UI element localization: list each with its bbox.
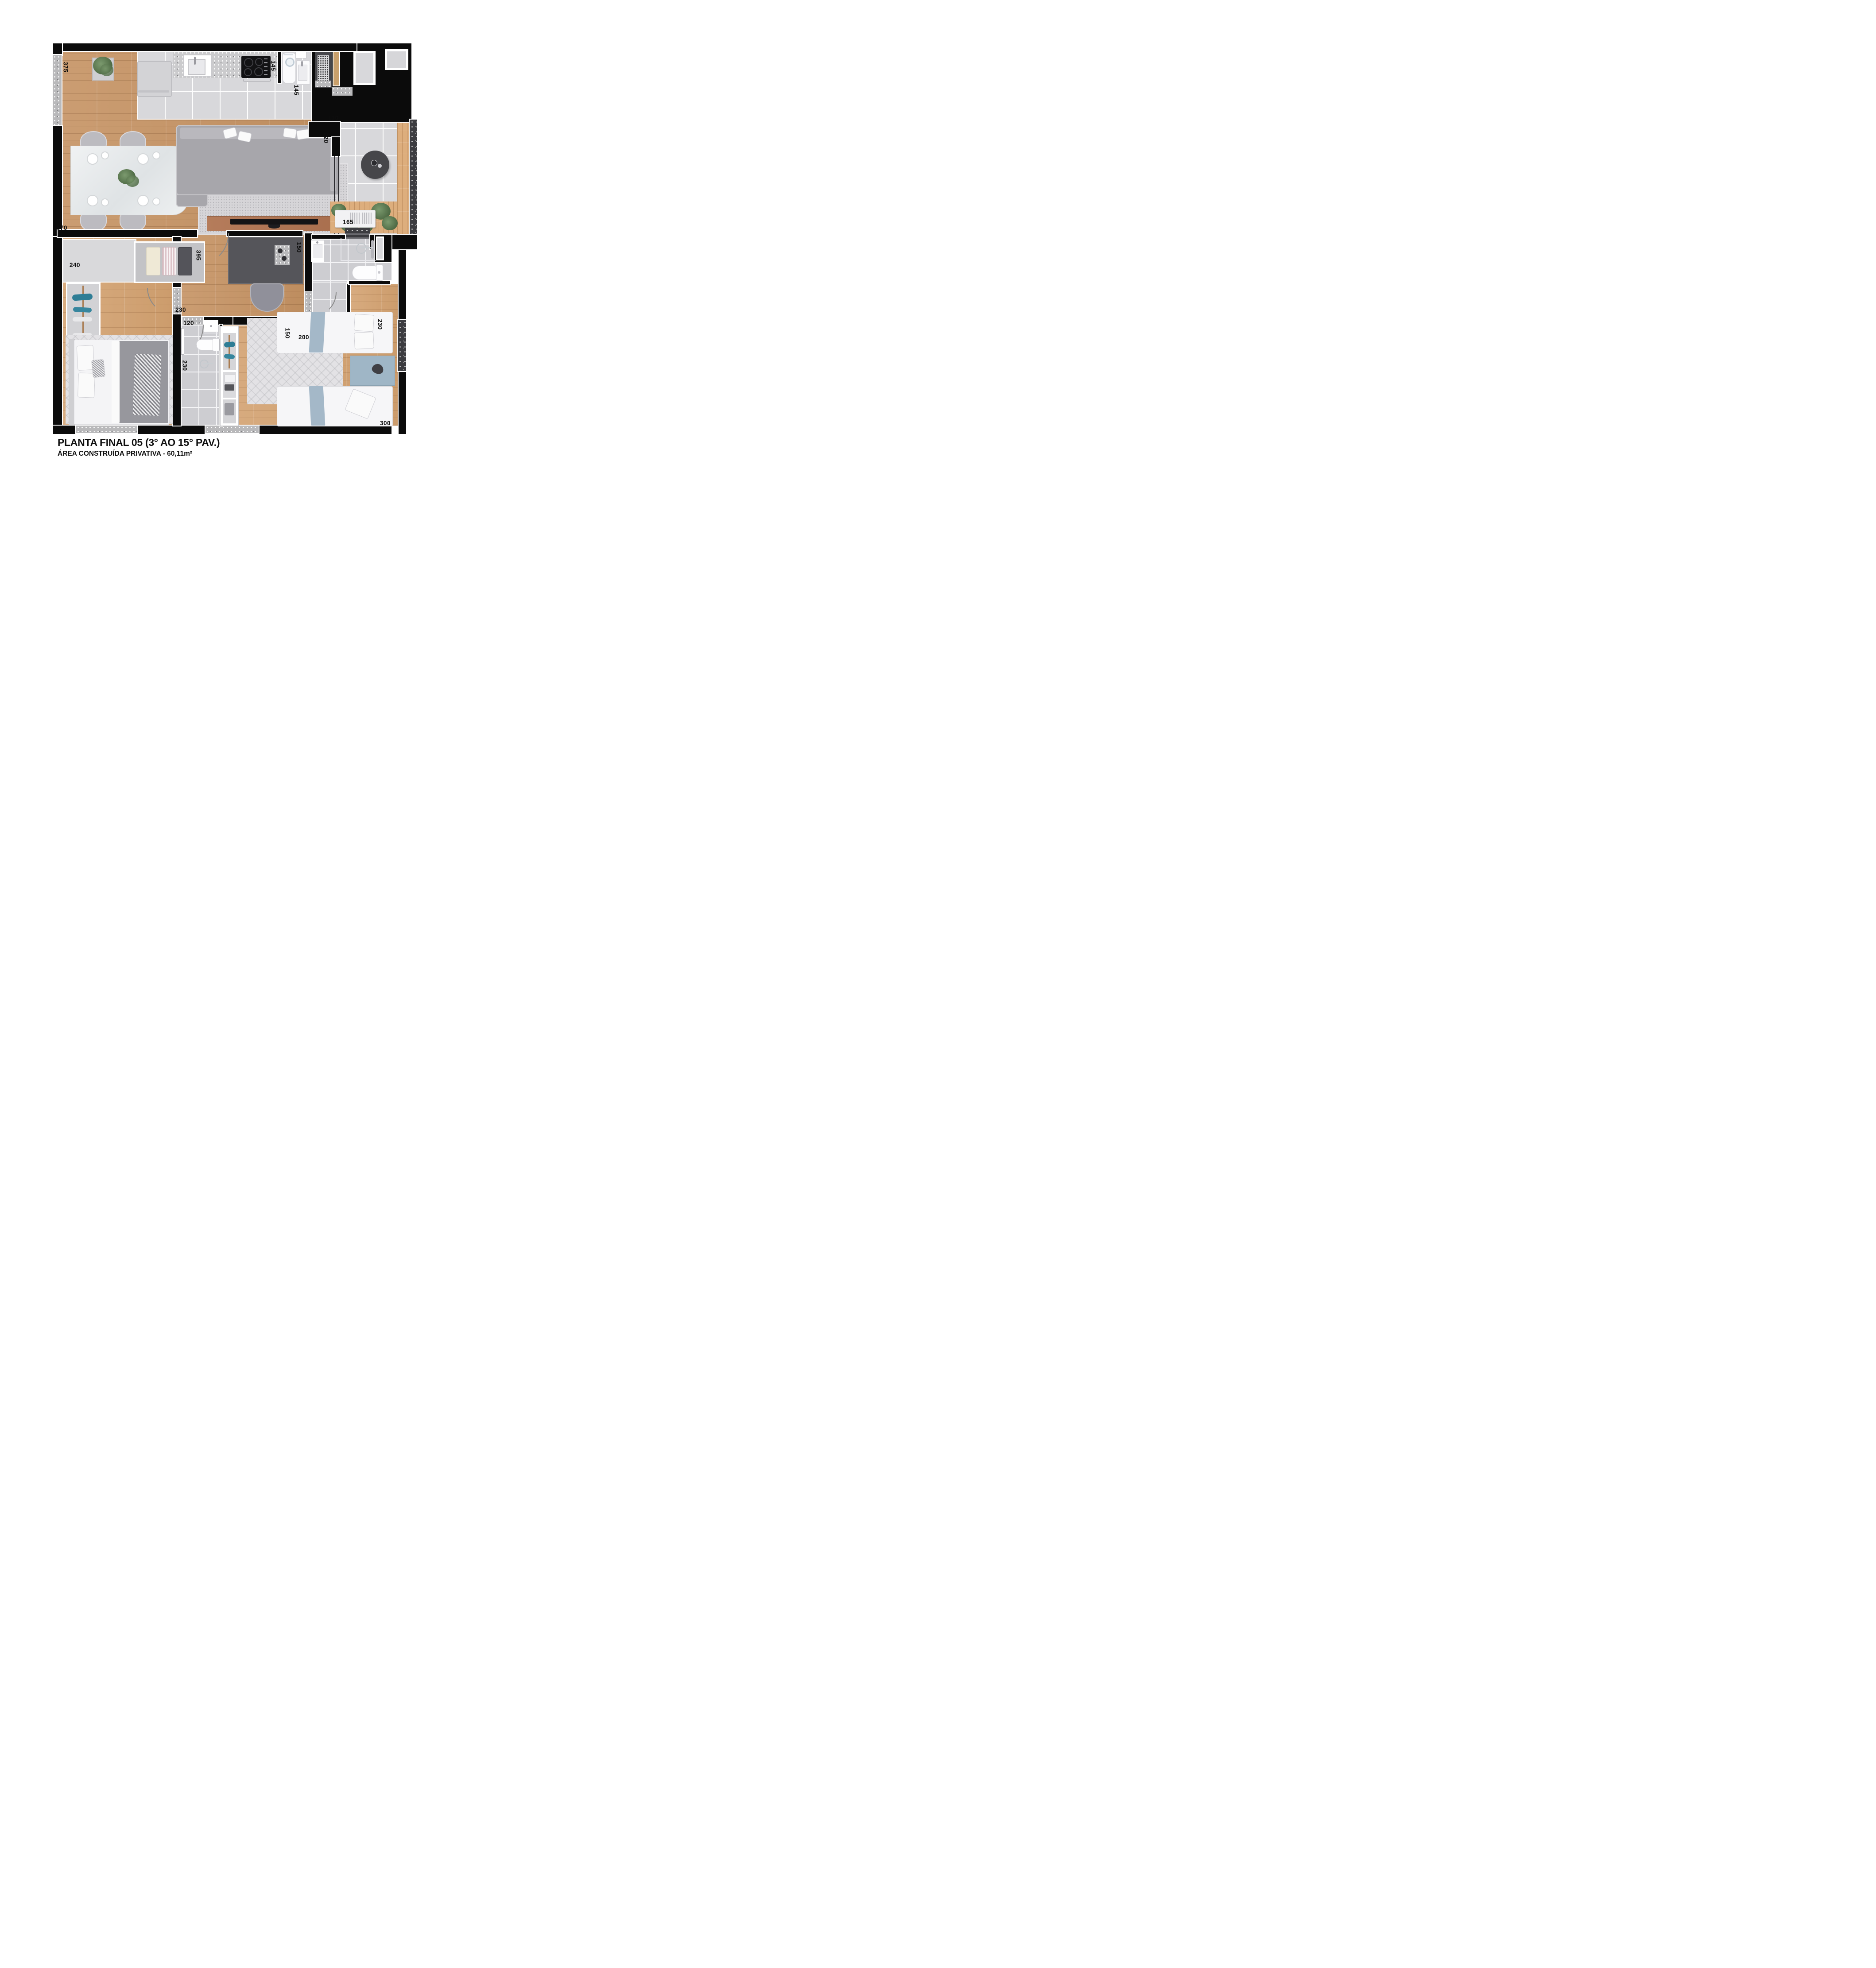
side-plate	[101, 198, 109, 206]
desk-cup	[278, 248, 283, 253]
plan-subtitle: ÁREA CONSTRUÍDA PRIVATIVA - 60,11m²	[58, 450, 192, 458]
dim-balcony-wall: 110	[323, 115, 344, 121]
bedroom1-window	[76, 426, 137, 433]
dinner-plate	[137, 153, 149, 165]
side-plate	[152, 198, 160, 205]
bed-a-pillow	[354, 314, 375, 332]
office-north-wall	[227, 231, 302, 236]
service-shelf	[296, 50, 306, 58]
towel-ring	[200, 360, 209, 368]
wardrobe-shirt	[178, 247, 192, 275]
shelf-decor	[73, 317, 92, 322]
living-window	[53, 55, 62, 126]
toilet-flush-button	[378, 271, 380, 274]
nw-corner-wall	[53, 43, 62, 55]
dim-kitchen-counter: 145	[270, 55, 277, 77]
bathroom2-door-leaf	[181, 328, 184, 355]
folded-clothes-dark	[225, 384, 234, 391]
west-wall	[53, 126, 62, 237]
fridge-door-seam	[138, 90, 169, 93]
cooktop-burner	[244, 68, 252, 76]
bedroom1-north-wall	[58, 230, 197, 237]
bathroom1-window-track	[345, 233, 370, 239]
table-centerpiece-plant	[126, 175, 139, 187]
dinner-plate	[87, 153, 98, 165]
service-hall-door	[333, 52, 339, 85]
kitchen-sink-basin	[188, 59, 205, 75]
dim-living-window: 375	[62, 57, 69, 78]
shaft-grate	[318, 55, 329, 81]
sofa-pillow	[283, 128, 297, 139]
elevator-shaft	[387, 51, 406, 68]
cooktop-burner	[254, 67, 263, 76]
shower-drain	[371, 240, 374, 259]
dim-bath2-width: 230	[182, 355, 188, 376]
bathroom1-bedroom2-wall	[349, 281, 390, 284]
dim-wardrobe: 395	[195, 245, 202, 266]
dim-service-width: 145	[293, 80, 300, 101]
folded-clothes	[225, 375, 235, 383]
dim-hall-width: 150	[284, 323, 291, 344]
washer-panel	[284, 54, 293, 55]
closet-rod	[229, 335, 230, 368]
tv-stand	[268, 225, 280, 229]
shower-drain-cap	[210, 325, 212, 327]
kitchen-service-divider-wall	[278, 50, 281, 83]
bathroom1-sink-basin	[314, 244, 322, 258]
potted-plant	[100, 64, 113, 76]
cooktop-knobs	[264, 58, 267, 75]
planter-shrub	[382, 216, 398, 230]
bedroom1-east-wall-lower	[173, 314, 181, 426]
dim-planter: 165	[337, 219, 359, 225]
bathroom2-window	[205, 426, 259, 433]
bed-b-blue-blanket	[309, 386, 326, 426]
north-wall	[54, 43, 357, 51]
bathroom1-window-ledge	[345, 228, 370, 233]
oven-handle	[243, 79, 271, 82]
sofa-pillow	[296, 129, 310, 140]
closet-decor-teal	[224, 354, 235, 359]
dim-bedroom2-width: 230	[377, 314, 384, 335]
cooktop-burner	[244, 58, 253, 67]
bedroom1-niche	[63, 240, 136, 282]
towel-bar	[203, 363, 213, 364]
bathroom2-toilet-tank	[213, 338, 220, 351]
dim-bedroom1-width: 240	[64, 262, 85, 268]
bed1-houndstooth-throw	[133, 354, 162, 416]
shower-glass-panel	[341, 238, 341, 261]
wardrobe-shirt	[146, 247, 160, 275]
bathroom2-shower-glass	[204, 333, 218, 333]
bathroom1-north-wall	[312, 235, 345, 239]
dim-balcony-door: 220	[323, 128, 329, 149]
hall-threshold	[332, 87, 353, 96]
dinner-plate	[137, 195, 149, 206]
closet-item	[225, 403, 234, 415]
dim-hall-length: 200	[293, 334, 314, 341]
bedroom2-window	[398, 320, 406, 371]
floor-plan-canvas: 375 145 145 110 220 570 165 240 395 150 …	[0, 0, 469, 492]
bed1-accent-cushion	[91, 359, 105, 378]
desk-cup	[282, 256, 287, 261]
shelf-decor-teal	[73, 307, 92, 313]
shaft-sill	[315, 81, 331, 87]
balcony-door-jamb-wall	[332, 137, 340, 156]
bathroom2-toilet-bowl	[196, 339, 215, 350]
towel-ring	[356, 243, 367, 254]
balcony-deck	[397, 122, 410, 235]
bathroom1-niche	[377, 238, 383, 259]
dinner-plate	[87, 195, 98, 206]
towel-bar	[361, 247, 373, 248]
tv	[230, 219, 318, 225]
west-wall-bedroom1	[53, 237, 62, 434]
side-plate	[101, 151, 109, 159]
laundry-tub-basin	[298, 65, 307, 81]
balcony-east-wall	[410, 120, 417, 249]
kitchen-faucet	[194, 57, 196, 65]
bed1-sheet-fold	[112, 341, 120, 423]
shower-glass-panel	[341, 260, 376, 261]
dim-living-width: 570	[51, 225, 73, 231]
bathroom1-faucet	[316, 241, 318, 244]
desk	[228, 237, 303, 284]
bathroom1-toilet-bowl	[352, 266, 377, 280]
plan-title: PLANTA FINAL 05 (3° AO 15° PAV.)	[58, 437, 220, 449]
table-cup	[371, 160, 377, 166]
dim-bedroom1-passage: 120	[178, 320, 199, 326]
single-bed-a	[277, 312, 393, 353]
bed-a-pillow	[354, 332, 374, 349]
desk-tray	[275, 245, 290, 265]
cooktop-burner	[255, 58, 263, 66]
wardrobe-shirt	[162, 247, 176, 275]
table-cup	[378, 164, 382, 168]
bed-a-blue-blanket	[309, 312, 326, 353]
dim-bath1-wall: 150	[296, 237, 302, 258]
common-niche	[356, 53, 373, 83]
side-plate	[152, 151, 160, 159]
ac-vent	[362, 213, 372, 224]
dim-bedroom2-length: 300	[375, 420, 396, 426]
washer-door	[285, 58, 295, 67]
dim-bedroom1-door: 230	[170, 306, 191, 313]
tub-faucet	[301, 61, 303, 66]
